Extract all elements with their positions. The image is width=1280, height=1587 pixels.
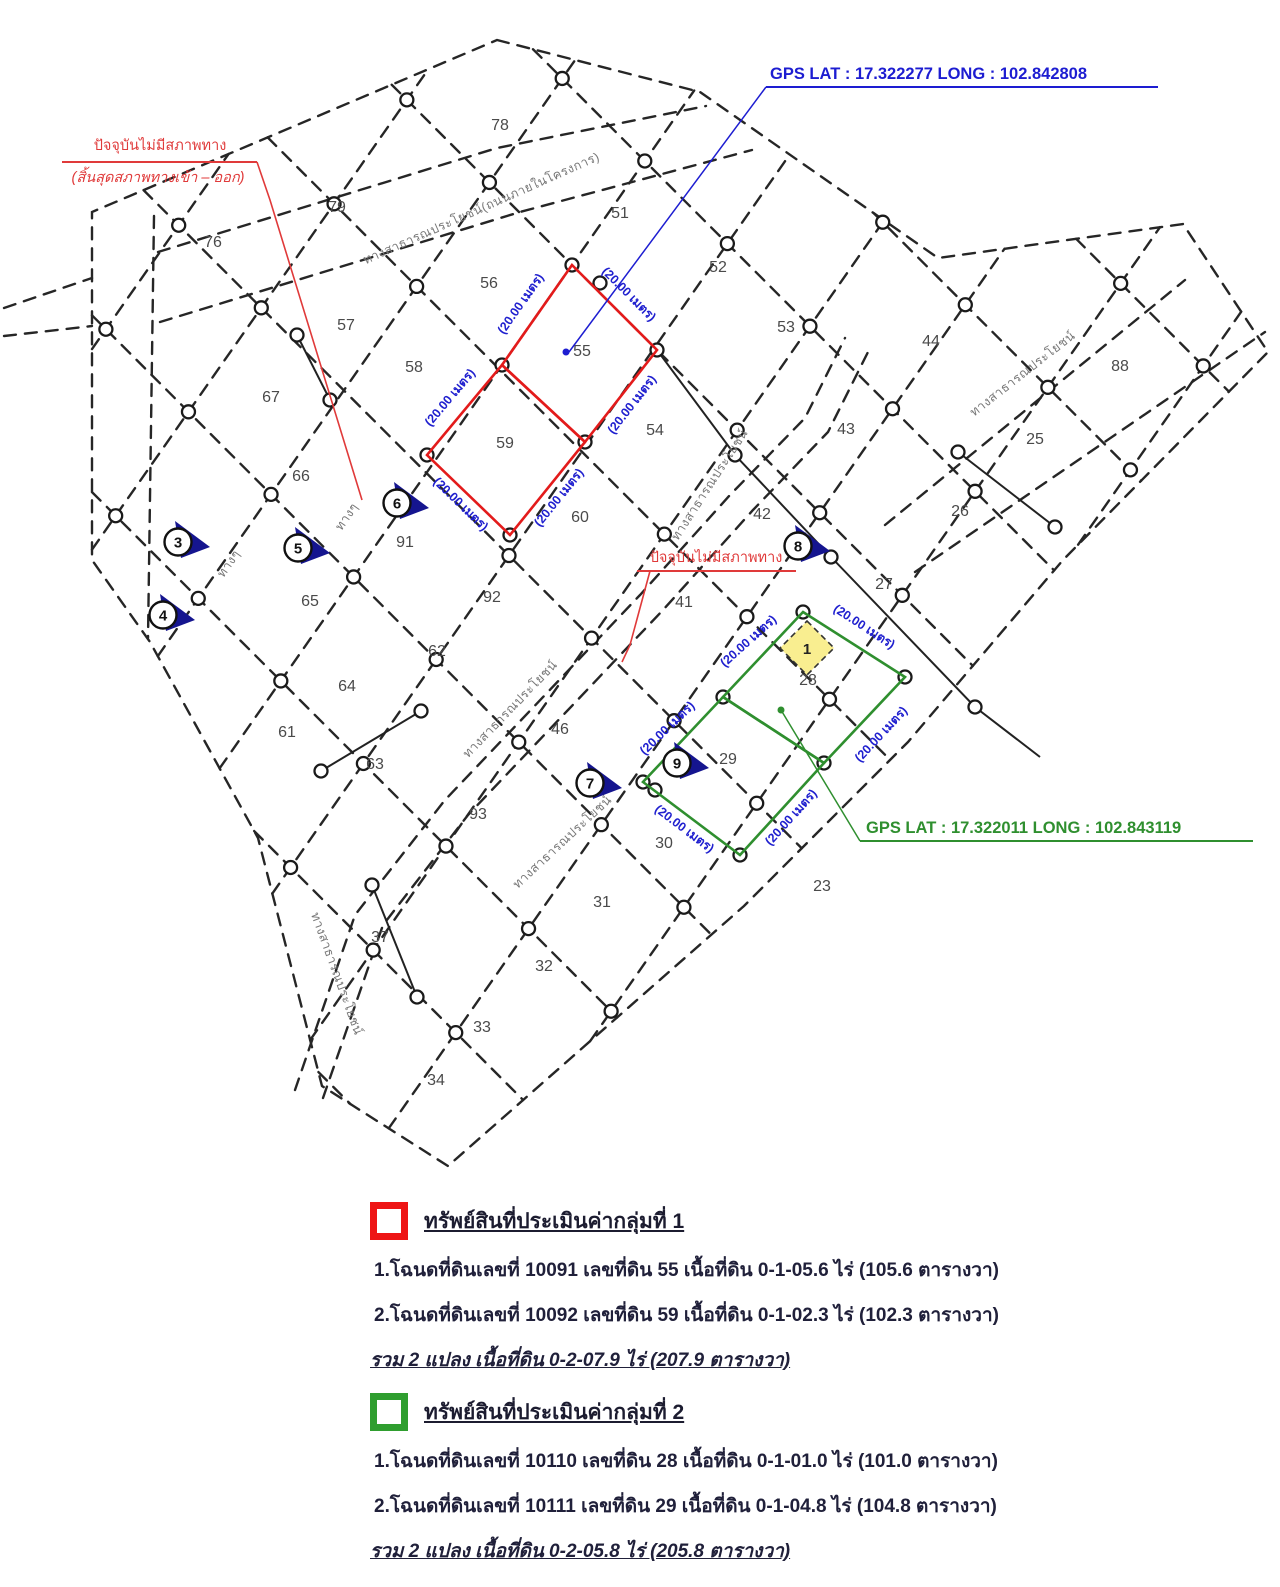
highlighted-plot-1-label: 1 bbox=[803, 641, 811, 658]
survey-monument-icon bbox=[265, 488, 278, 501]
dimension-label: (20.00 เมตร) bbox=[422, 366, 478, 429]
survey-monument-icon bbox=[291, 329, 304, 342]
plot-number-46: 46 bbox=[551, 721, 569, 738]
survey-monument-icon bbox=[969, 701, 982, 714]
road-name-label: ทางๆ bbox=[332, 500, 361, 533]
road-name-label: ทางสาธารณประโยชน์(ถนนภายในโครงการ) bbox=[361, 149, 602, 267]
survey-monument-icon bbox=[638, 155, 651, 168]
plot-number-67: 67 bbox=[262, 389, 280, 406]
survey-monument-icon bbox=[825, 551, 838, 564]
plot-number-42: 42 bbox=[753, 506, 771, 523]
survey-monument-icon bbox=[366, 879, 379, 892]
survey-monument-icon bbox=[886, 402, 899, 415]
gps-label-group2: GPS LAT : 17.322011 LONG : 102.843119 bbox=[866, 819, 1181, 837]
dimension-label: (20.00 เมตร) bbox=[831, 602, 898, 652]
plot-number-60: 60 bbox=[571, 509, 589, 526]
gps-label-group1-anchor-dot bbox=[563, 349, 570, 356]
survey-monument-icon bbox=[182, 405, 195, 418]
survey-monument-icon bbox=[1197, 359, 1210, 372]
plot-number-34: 34 bbox=[427, 1072, 445, 1089]
survey-monument-icon bbox=[813, 506, 826, 519]
survey-monument-icon bbox=[411, 991, 424, 1004]
photo-marker-3: 3 bbox=[165, 521, 211, 558]
plot-number-63: 63 bbox=[366, 756, 384, 773]
survey-monument-icon bbox=[605, 1005, 618, 1018]
plot-number-65: 65 bbox=[301, 593, 319, 610]
survey-monument-icon bbox=[522, 922, 535, 935]
survey-monument-icon bbox=[721, 237, 734, 250]
survey-monument-icon bbox=[410, 280, 423, 293]
plot-number-92: 92 bbox=[483, 589, 501, 606]
marker-number: 4 bbox=[159, 608, 168, 625]
marker-number: 5 bbox=[294, 541, 302, 558]
survey-monument-icon bbox=[556, 72, 569, 85]
survey-monument-icon bbox=[315, 765, 328, 778]
marker-number: 9 bbox=[673, 756, 681, 773]
road-name-label: ทางสาธารณประโยชน์ bbox=[509, 792, 614, 891]
marker-number: 6 bbox=[393, 496, 401, 513]
survey-monument-icon bbox=[1049, 521, 1062, 534]
plot-number-52: 52 bbox=[709, 259, 727, 276]
survey-monument-icon bbox=[952, 446, 965, 459]
marker-number: 3 bbox=[174, 535, 182, 552]
road-edge-line bbox=[4, 326, 92, 336]
dimension-label: (20.00 เมตร) bbox=[599, 264, 659, 324]
road-edge-line bbox=[148, 216, 154, 638]
road-name-label: ทางสาธารณประโยชน์ bbox=[459, 657, 560, 761]
survey-monument-icon bbox=[109, 509, 122, 522]
survey-monument-icon bbox=[439, 840, 452, 853]
plot-number-43: 43 bbox=[837, 421, 855, 438]
plot-number-44: 44 bbox=[922, 333, 940, 350]
survey-monument-icon bbox=[255, 301, 268, 314]
parcel-boundary-line bbox=[389, 249, 1005, 1129]
plot-number-33: 33 bbox=[473, 1019, 491, 1036]
legend-group-2-total: รวม 2 แปลง เนื้อที่ดิน 0-2-05.8 ไร่ (205… bbox=[370, 1536, 1270, 1566]
survey-monument-icon bbox=[192, 592, 205, 605]
survey-monument-icon bbox=[595, 818, 608, 831]
parcel-boundary-line bbox=[874, 213, 1141, 480]
group2-green-swatch-icon bbox=[370, 1393, 408, 1431]
gps-label-group1: GPS LAT : 17.322277 LONG : 102.842808 bbox=[770, 65, 1087, 83]
survey-monument-icon bbox=[449, 1026, 462, 1039]
survey-monument-icon bbox=[823, 693, 836, 706]
survey-monument-icon bbox=[512, 736, 525, 749]
no-road-note-line1: ปัจจุบันไม่มีสภาพทาง bbox=[94, 136, 227, 154]
road-name-label: ทางสาธารณประโยชน์ bbox=[967, 328, 1078, 419]
legend-group-1-heading: ทรัพย์สินที่ประเมินค่ากลุ่มที่ 1 bbox=[424, 1205, 684, 1238]
survey-monument-icon bbox=[959, 298, 972, 311]
plot-number-78: 78 bbox=[491, 117, 509, 134]
plot-number-57: 57 bbox=[337, 317, 355, 334]
survey-monument-icon bbox=[274, 674, 287, 687]
plot-number-93: 93 bbox=[469, 806, 487, 823]
plot-number-37: 37 bbox=[371, 929, 389, 946]
plot-number-28: 28 bbox=[799, 672, 817, 689]
dimension-label: (20.00 เมตร) bbox=[431, 475, 491, 534]
plot-number-56: 56 bbox=[480, 275, 498, 292]
dimension-label: (20.00 เมตร) bbox=[637, 699, 697, 758]
plot-number-32: 32 bbox=[535, 958, 553, 975]
plot-number-31: 31 bbox=[593, 894, 611, 911]
survey-monument-icon bbox=[740, 610, 753, 623]
photo-marker-7: 7 bbox=[577, 762, 623, 799]
survey-monument-icon bbox=[876, 216, 889, 229]
road-edge-line bbox=[915, 332, 1265, 572]
legend-group-1-total: รวม 2 แปลง เนื้อที่ดิน 0-2-07.9 ไร่ (207… bbox=[370, 1345, 1270, 1375]
legend-group-1-item-1: 1.โฉนดที่ดินเลขที่ 10091 เลขที่ดิน 55 เน… bbox=[374, 1255, 1270, 1285]
road-edge-line bbox=[295, 338, 845, 1090]
plot-number-59: 59 bbox=[496, 435, 514, 452]
photo-marker-6: 6 bbox=[384, 482, 430, 519]
plot-number-66: 66 bbox=[292, 468, 310, 485]
survey-monument-icon bbox=[1124, 463, 1137, 476]
survey-monument-icon bbox=[99, 323, 112, 336]
plot-number-61: 61 bbox=[278, 724, 296, 741]
road-edge-line bbox=[4, 278, 92, 308]
survey-monument-icon bbox=[483, 176, 496, 189]
road-name-label: ทางสาธารณประโยชน์ bbox=[308, 910, 366, 1037]
survey-monument-icon bbox=[750, 797, 763, 810]
legend-group-1-header: ทรัพย์สินที่ประเมินค่ากลุ่มที่ 1 bbox=[370, 1202, 1270, 1240]
legend: ทรัพย์สินที่ประเมินค่ากลุ่มที่ 1 1.โฉนดท… bbox=[370, 1194, 1270, 1584]
plot-number-53: 53 bbox=[777, 319, 795, 336]
marker-number: 8 bbox=[794, 539, 802, 556]
legend-group-2-item-1: 1.โฉนดที่ดินเลขที่ 10110 เลขที่ดิน 28 เน… bbox=[374, 1446, 1270, 1476]
plot-number-30: 30 bbox=[655, 835, 673, 852]
road-name-label: ทางๆ bbox=[214, 547, 243, 580]
survey-monument-icon bbox=[803, 320, 816, 333]
plot-number-51: 51 bbox=[611, 205, 629, 222]
plot-number-54: 54 bbox=[646, 422, 664, 439]
dimension-label: (20.00 เมตร) bbox=[852, 704, 910, 765]
survey-monument-icon bbox=[400, 93, 413, 106]
gps-label-group2-anchor-dot bbox=[778, 707, 785, 714]
cadastral-map: (20.00 เมตร)(20.00 เมตร)(20.00 เมตร)(20.… bbox=[0, 0, 1280, 1190]
legend-group-2-item-2: 2.โฉนดที่ดินเลขที่ 10111 เลขที่ดิน 29 เน… bbox=[374, 1491, 1270, 1521]
plot-number-23: 23 bbox=[813, 878, 831, 895]
group1-red-swatch-icon bbox=[370, 1202, 408, 1240]
plot-number-76: 76 bbox=[204, 234, 222, 251]
plot-number-88: 88 bbox=[1111, 358, 1129, 375]
plot-number-55: 55 bbox=[573, 343, 591, 360]
road-edge-line bbox=[885, 280, 1185, 525]
survey-monument-icon bbox=[415, 705, 428, 718]
marker-number: 7 bbox=[586, 776, 594, 793]
plot-number-62: 62 bbox=[428, 643, 446, 660]
survey-monument-icon bbox=[896, 589, 909, 602]
plot-number-29: 29 bbox=[719, 751, 737, 768]
plot-number-27: 27 bbox=[875, 576, 893, 593]
no-road-note-mid: ปัจจุบันไม่มีสภาพทาง bbox=[650, 548, 783, 566]
dimension-label: (20.00 เมตร) bbox=[495, 271, 547, 337]
legend-group-1: ทรัพย์สินที่ประเมินค่ากลุ่มที่ 1 1.โฉนดท… bbox=[370, 1202, 1270, 1375]
survey-monument-icon bbox=[502, 549, 515, 562]
survey-monument-icon bbox=[284, 861, 297, 874]
fence-line bbox=[297, 335, 330, 400]
survey-monument-icon bbox=[1114, 277, 1127, 290]
survey-monument-icon bbox=[585, 632, 598, 645]
legend-group-2: ทรัพย์สินที่ประเมินค่ากลุ่มที่ 2 1.โฉนดท… bbox=[370, 1393, 1270, 1566]
legend-group-2-heading: ทรัพย์สินที่ประเมินค่ากลุ่มที่ 2 bbox=[424, 1396, 684, 1429]
plot-number-64: 64 bbox=[338, 678, 356, 695]
survey-monument-icon bbox=[347, 570, 360, 583]
plot-number-91: 91 bbox=[396, 534, 414, 551]
plot-number-25: 25 bbox=[1026, 431, 1044, 448]
parcel-boundary-line bbox=[220, 91, 695, 769]
survey-monument-icon bbox=[969, 485, 982, 498]
legend-group-2-header: ทรัพย์สินที่ประเมินค่ากลุ่มที่ 2 bbox=[370, 1393, 1270, 1431]
survey-monument-icon bbox=[172, 219, 185, 232]
survey-monument-icon bbox=[677, 901, 690, 914]
plot-number-79: 79 bbox=[328, 199, 346, 216]
plot-number-41: 41 bbox=[675, 594, 693, 611]
legend-group-1-item-2: 2.โฉนดที่ดินเลขที่ 10092 เลขที่ดิน 59 เน… bbox=[374, 1300, 1270, 1330]
survey-monument-icon bbox=[1041, 381, 1054, 394]
plot-number-58: 58 bbox=[405, 359, 423, 376]
plot-number-26: 26 bbox=[951, 503, 969, 520]
